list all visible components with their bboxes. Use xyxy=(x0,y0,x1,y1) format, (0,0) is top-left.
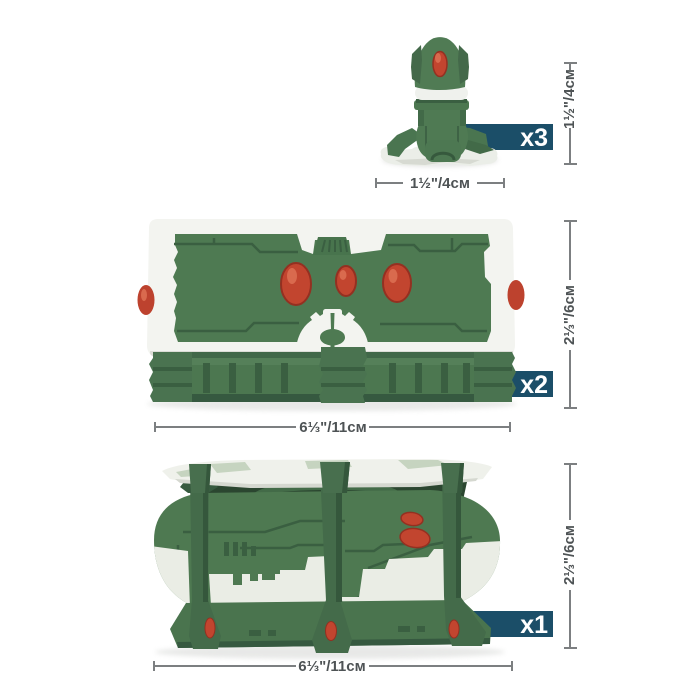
svg-text:1½"/4см: 1½"/4см xyxy=(561,69,578,129)
svg-text:2⅓"/6см: 2⅓"/6см xyxy=(561,525,578,585)
svg-text:1½"/4см: 1½"/4см xyxy=(410,175,470,192)
svg-text:6⅓"/11см: 6⅓"/11см xyxy=(299,419,366,436)
svg-text:2⅓"/6см: 2⅓"/6см xyxy=(561,285,578,345)
svg-text:x2: x2 xyxy=(520,371,548,399)
svg-text:x3: x3 xyxy=(520,124,548,152)
svg-text:6⅓"/11см: 6⅓"/11см xyxy=(298,658,365,675)
svg-text:x1: x1 xyxy=(520,611,548,639)
